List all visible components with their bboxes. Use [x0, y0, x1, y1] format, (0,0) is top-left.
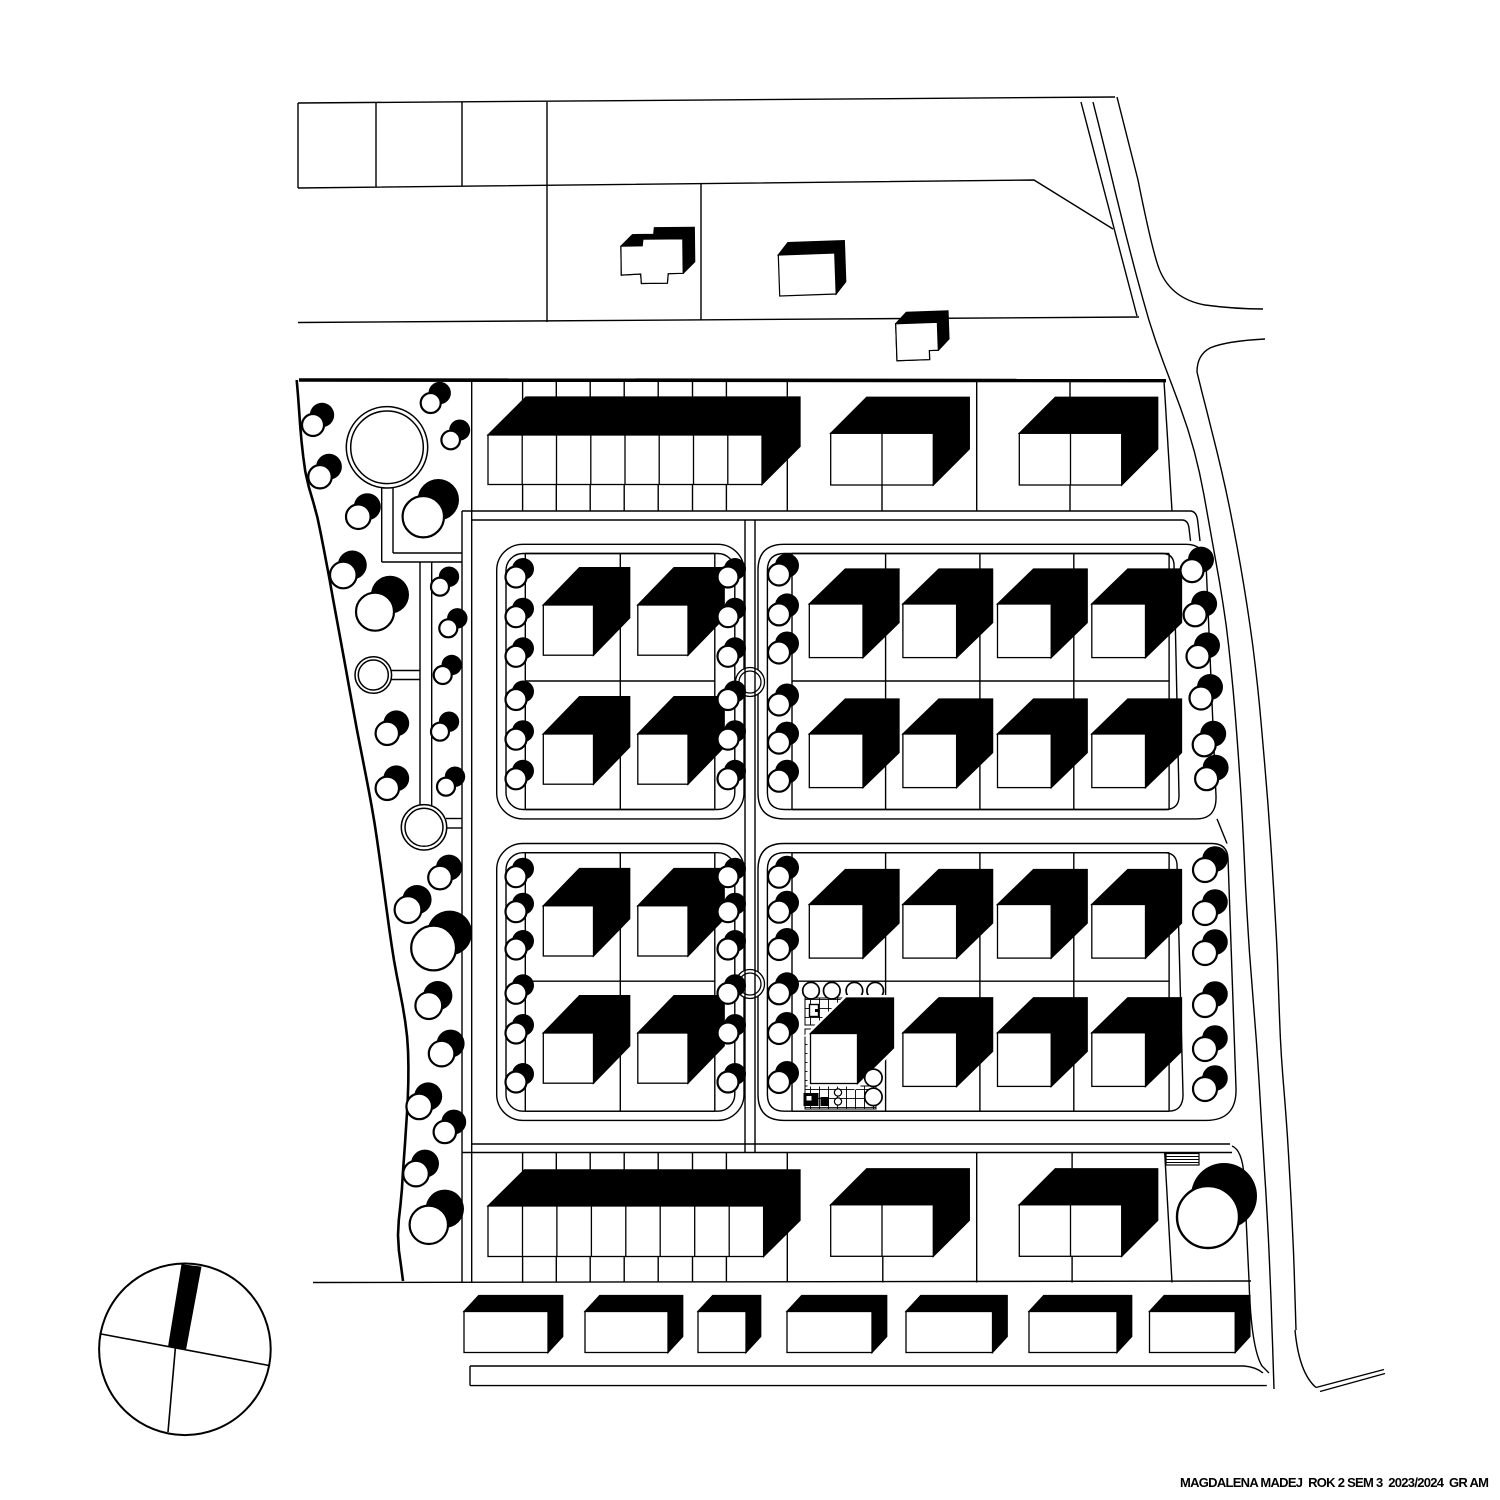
svg-text:MAGDALENA MADEJ ROK 2 SEM 3: MAGDALENA MADEJ ROK 2 SEM 3 2023/2024 GR… [1180, 1475, 1489, 1490]
